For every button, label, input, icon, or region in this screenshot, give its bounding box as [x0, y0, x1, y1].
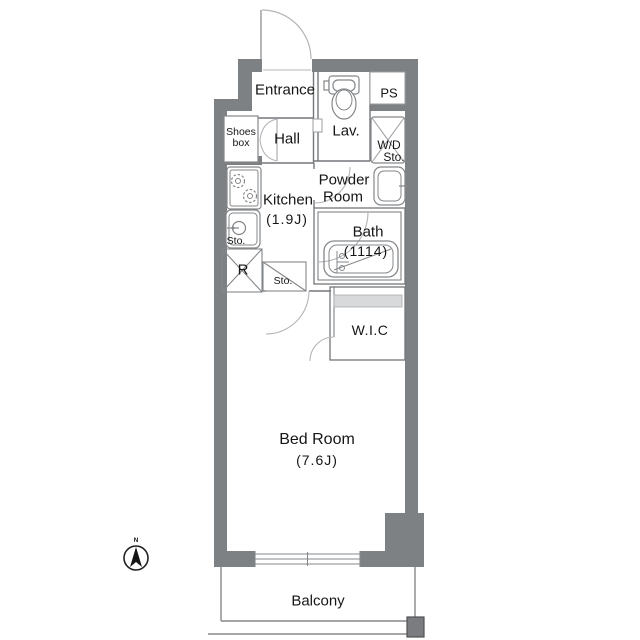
bedroom-door-arc [266, 291, 309, 334]
label-kitchen-storage: Sto. [227, 236, 246, 247]
label-shoes-box-1: Shoes [226, 127, 256, 138]
label-powder-room-2: Room [323, 190, 363, 205]
label-shoes-box-2: box [233, 138, 250, 149]
floor-plan: Entrance Hall Shoes box Lav. PS W/D Sto.… [0, 0, 640, 640]
label-bedroom-2: (7.6J) [296, 453, 338, 467]
label-entrance: Entrance [255, 83, 315, 98]
label-lavatory: Lav. [332, 124, 359, 139]
window-icon [255, 551, 360, 567]
label-compass-north: N [134, 538, 139, 545]
label-hall: Hall [274, 132, 300, 147]
label-bath-2: (1114) [344, 244, 388, 258]
entrance-door-icon [261, 10, 311, 70]
label-refrigerator: R [238, 263, 249, 278]
label-walk-in-closet: W.I.C [352, 323, 389, 337]
label-hall-storage: Sto. [274, 276, 293, 287]
label-wd-storage-2: Sto. [383, 151, 404, 163]
label-kitchen-1: Kitchen [263, 193, 313, 208]
label-powder-room-1: Powder [319, 173, 370, 188]
washbasin-icon [374, 167, 409, 205]
label-balcony: Balcony [291, 594, 344, 609]
stove-icon [227, 167, 261, 209]
label-kitchen-2: (1.9J) [266, 212, 308, 226]
floor-plan-drawing [0, 0, 640, 640]
label-bath-1: Bath [353, 225, 384, 240]
compass-icon [124, 546, 148, 570]
label-pipe-space: PS [380, 87, 397, 100]
label-bedroom-1: Bed Room [279, 432, 355, 448]
balcony-post [407, 617, 424, 637]
